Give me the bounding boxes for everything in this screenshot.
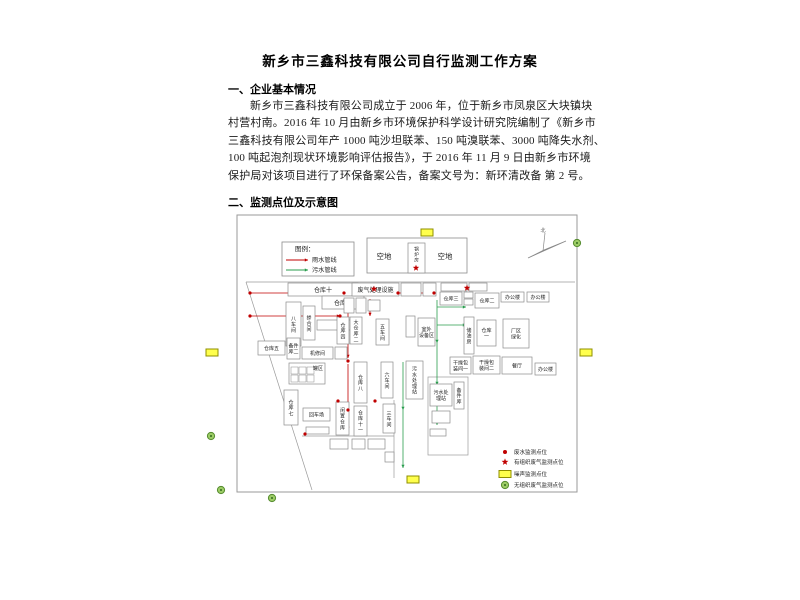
diagram-label: 闲置仓库 bbox=[340, 407, 345, 431]
diagram-label: 污水管线 bbox=[312, 266, 337, 274]
pipe-arrowhead bbox=[368, 313, 371, 316]
pipe-arrowhead bbox=[435, 340, 438, 343]
unorganized-gas-point-marker-dot bbox=[220, 489, 222, 491]
diagram-label: 图例： bbox=[295, 244, 315, 253]
diagram-label: 无组织废气监测点位 bbox=[514, 481, 564, 489]
diagram-label: 一 bbox=[484, 334, 489, 340]
diagram-label: 仓库五 bbox=[264, 345, 279, 352]
unorganized-gas-point-marker-dot bbox=[504, 484, 506, 486]
noise-point-marker bbox=[499, 471, 511, 478]
diagram-label: 仓库十一 bbox=[358, 409, 363, 433]
diagram-label: 空地 bbox=[438, 251, 453, 261]
building-box bbox=[406, 316, 415, 337]
diagram-label: 室外 bbox=[421, 326, 431, 333]
diagram-label: 办公楼 bbox=[538, 366, 553, 373]
plant-boundary-line bbox=[246, 282, 312, 490]
wastewater-point-marker bbox=[373, 399, 376, 402]
document-page: 新乡市三鑫科技有限公司自行监测工作方案 一、企业基本情况 新乡市三鑫科技有限公司… bbox=[0, 0, 800, 600]
wastewater-point-marker bbox=[432, 291, 435, 294]
diagram-label: 装间二 bbox=[479, 365, 494, 372]
tank-box bbox=[299, 367, 306, 374]
diagram-label: 六车间 bbox=[384, 371, 389, 390]
pipe-arrowhead bbox=[401, 407, 404, 410]
diagram-label: 大仓库二 bbox=[353, 319, 358, 343]
diagram-label: 掺合间 bbox=[306, 314, 311, 333]
wastewater-point-marker bbox=[336, 399, 339, 402]
diagram-label: 仓库十 bbox=[314, 286, 332, 294]
building-box bbox=[368, 439, 385, 449]
diagram-label: 仓库七 bbox=[288, 399, 293, 418]
organized-gas-point-star bbox=[502, 458, 509, 465]
diagram-label: 干燥包 bbox=[479, 359, 494, 366]
diagram-label: 罐区 bbox=[313, 365, 323, 372]
noise-point-marker bbox=[206, 349, 218, 356]
diagram-label: 办公楼 bbox=[530, 294, 545, 301]
wastewater-point-marker bbox=[342, 291, 345, 294]
building-box bbox=[430, 429, 446, 436]
diagram-label: 装间一 bbox=[453, 365, 468, 372]
building-box bbox=[401, 283, 421, 296]
diagram-label: 雨水管线 bbox=[312, 256, 337, 264]
tank-box bbox=[291, 367, 298, 374]
diagram-label: 餐厅 bbox=[512, 362, 522, 369]
diagram-label: 污水处 bbox=[433, 389, 448, 396]
building-box bbox=[441, 283, 467, 291]
diagram-label: 八车间 bbox=[291, 316, 296, 334]
diagram-label: 仓库三 bbox=[443, 295, 458, 302]
wastewater-point-marker bbox=[248, 314, 251, 317]
noise-point-marker bbox=[421, 229, 433, 236]
wastewater-point-marker bbox=[346, 408, 349, 411]
diagram-label: 噪声监测点位 bbox=[514, 470, 548, 478]
pipe-arrowhead bbox=[463, 305, 466, 308]
diagram-label: 干燥包 bbox=[453, 359, 468, 366]
diagram-label: 机修间 bbox=[310, 350, 325, 357]
diagram-label: 仓库二 bbox=[479, 297, 494, 304]
diagram-label: 三车间 bbox=[386, 411, 391, 429]
tank-box bbox=[307, 375, 314, 382]
building-box bbox=[335, 347, 347, 359]
building-box bbox=[356, 298, 366, 313]
diagram-label: 备件库 bbox=[456, 387, 461, 406]
building-box bbox=[352, 439, 365, 449]
wastewater-point-marker bbox=[248, 291, 251, 294]
diagram-label: 设备区 bbox=[419, 332, 434, 339]
unorganized-gas-point-marker-dot bbox=[210, 435, 212, 437]
building-box bbox=[330, 439, 348, 449]
diagram-label: 有组织废气监测点位 bbox=[514, 458, 564, 466]
wastewater-point-marker bbox=[503, 450, 507, 454]
diagram-label: 库二 bbox=[288, 348, 298, 355]
unorganized-gas-point-marker-dot bbox=[271, 497, 273, 499]
diagram-label: 北 bbox=[540, 227, 545, 234]
diagram-label: 绿化 bbox=[511, 333, 521, 340]
diagram-label: 空地 bbox=[377, 251, 392, 261]
diagram-label: 办公楼 bbox=[505, 294, 520, 301]
diagram-label: 备件 bbox=[288, 342, 298, 349]
diagram-label: 废气处理设施 bbox=[357, 286, 393, 294]
wastewater-point-marker bbox=[303, 432, 306, 435]
pipe-arrowhead bbox=[401, 465, 404, 468]
building-box bbox=[464, 292, 473, 298]
tank-box bbox=[291, 375, 298, 382]
wastewater-point-marker bbox=[338, 314, 341, 317]
unorganized-gas-point-marker-dot bbox=[576, 242, 578, 244]
diagram-label: 回车场 bbox=[309, 411, 324, 418]
diagram-label: 仓库 bbox=[481, 327, 491, 334]
wastewater-point-marker bbox=[396, 291, 399, 294]
noise-point-marker bbox=[580, 349, 592, 356]
site-plan-diagram: 仓库十仓库九八车间掺合间仓库五备件库二机修间罐区仓库七回车场闲置仓库仓库八仓库十… bbox=[0, 0, 800, 600]
building-box bbox=[344, 298, 354, 313]
diagram-label: 仓库四 bbox=[340, 322, 345, 341]
building-box bbox=[306, 427, 329, 434]
north-arrow-icon bbox=[543, 233, 545, 251]
noise-point-marker bbox=[407, 476, 419, 483]
building-box bbox=[368, 300, 380, 311]
diagram-label: 污水处理站 bbox=[412, 366, 417, 396]
diagram-label: 储油房 bbox=[466, 327, 471, 346]
diagram-label: 五车间 bbox=[380, 324, 385, 342]
building-box bbox=[469, 283, 487, 291]
tank-box bbox=[299, 375, 306, 382]
diagram-label: 仓库八 bbox=[358, 374, 363, 393]
diagram-label: 理站 bbox=[436, 395, 446, 402]
building-box bbox=[432, 411, 450, 423]
wastewater-point-marker bbox=[346, 359, 349, 362]
diagram-label: 废水监测点位 bbox=[514, 448, 548, 456]
diagram-label: 锅炉房 bbox=[414, 246, 419, 264]
building-box bbox=[385, 452, 394, 462]
building-box bbox=[464, 299, 473, 305]
north-arrow-icon bbox=[528, 241, 566, 258]
